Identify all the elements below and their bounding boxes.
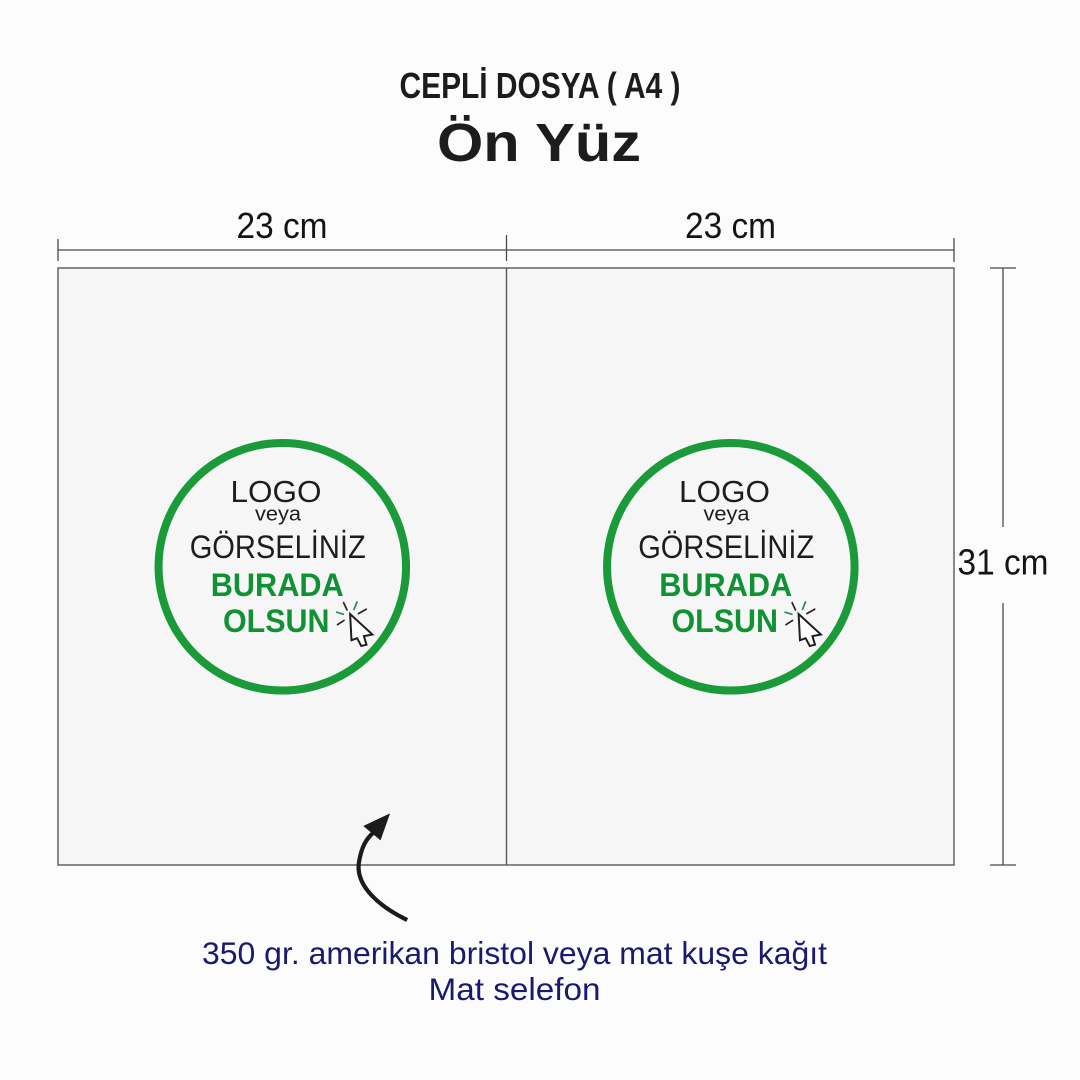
svg-text:31 cm: 31 cm — [958, 542, 1049, 583]
svg-text:Ön Yüz: Ön Yüz — [437, 113, 641, 173]
svg-text:BURADA: BURADA — [211, 567, 344, 603]
svg-text:OLSUN: OLSUN — [671, 603, 778, 639]
svg-text:OLSUN: OLSUN — [223, 603, 330, 639]
svg-text:Mat selefon: Mat selefon — [429, 971, 601, 1007]
svg-text:BURADA: BURADA — [659, 567, 792, 603]
svg-text:GÖRSELİNİZ: GÖRSELİNİZ — [638, 529, 814, 565]
svg-text:23 cm: 23 cm — [685, 205, 776, 246]
svg-text:23 cm: 23 cm — [237, 205, 328, 246]
svg-text:CEPLİ DOSYA ( A4 ): CEPLİ DOSYA ( A4 ) — [400, 65, 681, 106]
svg-text:350 gr. amerikan bristol veya: 350 gr. amerikan bristol veya mat kuşe k… — [202, 935, 827, 971]
svg-text:GÖRSELİNİZ: GÖRSELİNİZ — [190, 529, 366, 565]
svg-text:veya: veya — [255, 504, 302, 526]
svg-text:veya: veya — [704, 504, 751, 526]
